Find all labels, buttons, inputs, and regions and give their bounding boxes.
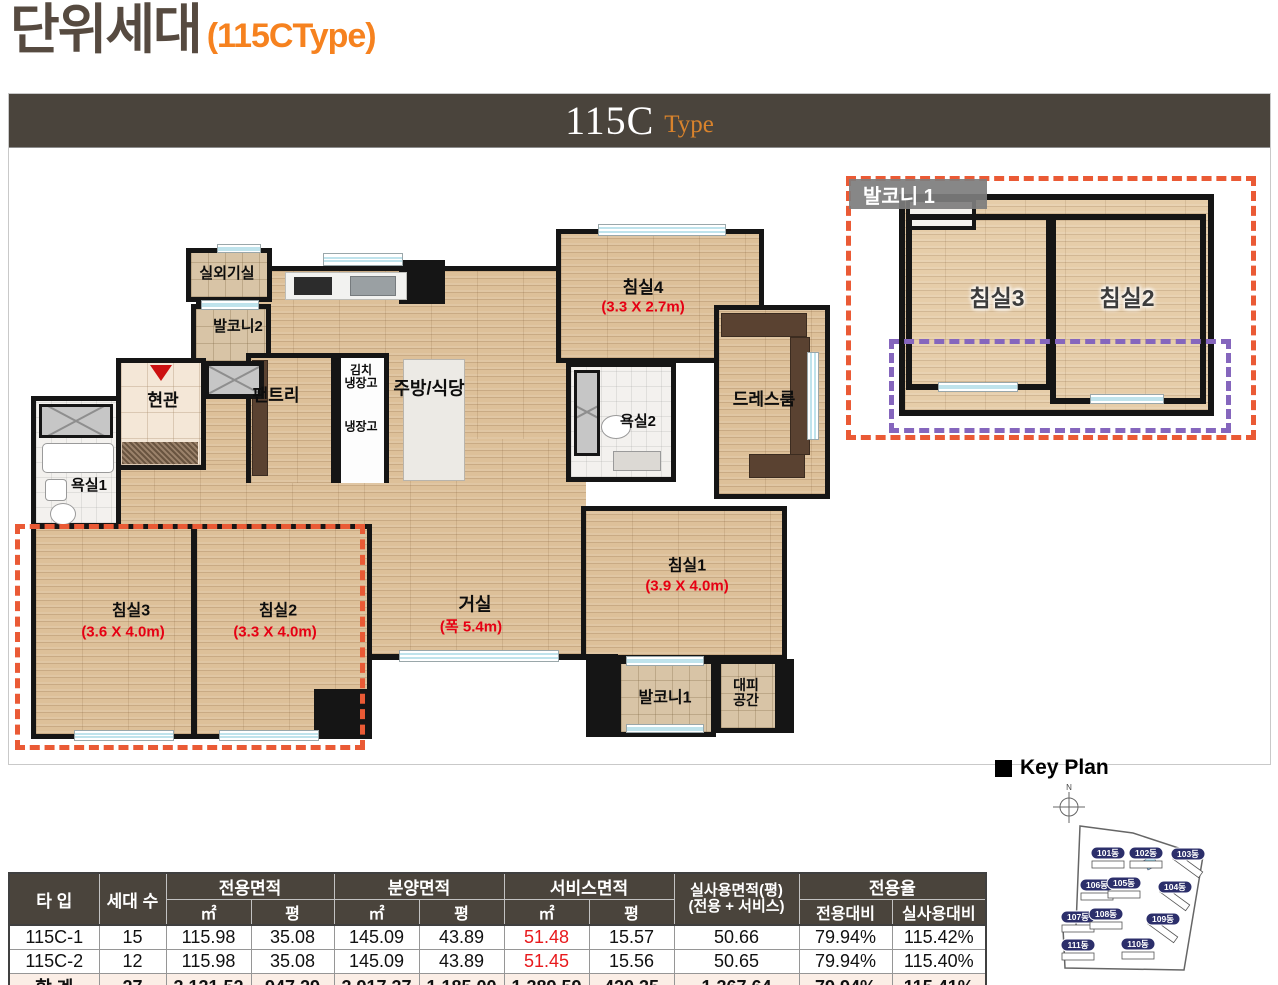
building-label: 108동 bbox=[1095, 909, 1117, 919]
building-label: 102동 bbox=[1135, 848, 1157, 858]
page-title-main: 단위세대 bbox=[10, 2, 201, 59]
cell: 1,185.00 bbox=[419, 974, 504, 985]
inset-outline bbox=[846, 176, 1256, 440]
window bbox=[598, 224, 726, 236]
compass-north-label: N bbox=[1066, 783, 1072, 792]
col-sub-m2: ㎡ bbox=[504, 900, 589, 926]
cell-service-m2: 51.48 bbox=[504, 925, 589, 950]
bath2-duct bbox=[574, 370, 600, 456]
label-pantry: 팬트리 bbox=[253, 387, 300, 405]
dim-bed2: (3.3 X 4.0m) bbox=[233, 624, 316, 641]
window bbox=[399, 650, 559, 662]
kitchen-counter bbox=[285, 272, 407, 300]
col-sub-py: 평 bbox=[419, 900, 504, 926]
wall-fill bbox=[586, 654, 618, 737]
col-units: 세대 수 bbox=[99, 873, 166, 925]
keyplan-bullet-icon bbox=[995, 760, 1012, 777]
building-label: 110동 bbox=[1127, 939, 1149, 949]
building-label: 107동 bbox=[1067, 912, 1089, 922]
wall-fill bbox=[780, 659, 794, 733]
type-banner: 115C Type bbox=[9, 94, 1270, 148]
col-group-supply: 분양면적 bbox=[334, 873, 504, 900]
vanity-icon bbox=[613, 451, 661, 471]
building-label: 101동 bbox=[1097, 848, 1119, 858]
inset-tag: 발코니 1 bbox=[849, 179, 987, 209]
wardrobe-top bbox=[721, 313, 807, 337]
compass-icon: N bbox=[1053, 783, 1085, 823]
cell: 145.09 bbox=[334, 950, 419, 974]
cell: 50.66 bbox=[674, 925, 799, 950]
cell: 35.08 bbox=[251, 950, 334, 974]
cell: 115.42% bbox=[892, 925, 986, 950]
keyplan-title: Key Plan bbox=[1020, 756, 1109, 780]
sink-icon bbox=[45, 479, 67, 501]
col-actual-area-line1: 실사용면적(평) bbox=[675, 883, 799, 900]
cell-service-m2: 51.45 bbox=[504, 950, 589, 974]
cell: 79.94% bbox=[799, 925, 892, 950]
inset-tag-label: 발코니 1 bbox=[863, 180, 935, 209]
cell: 420.35 bbox=[589, 974, 674, 985]
building-footprint bbox=[1092, 861, 1124, 868]
room-bath1 bbox=[31, 396, 121, 528]
col-sub-py: 평 bbox=[251, 900, 334, 926]
inset-label-bed3: 침실3 bbox=[969, 279, 1024, 313]
page: 단위세대 (115CType) 115C Type bbox=[0, 0, 1278, 985]
col-sub-exclusive-ratio: 전용대비 bbox=[799, 900, 892, 926]
building-footprint bbox=[1062, 925, 1094, 932]
building-label: 104동 bbox=[1164, 882, 1186, 892]
cell: 50.65 bbox=[674, 950, 799, 974]
cell: 79.94% bbox=[799, 974, 892, 985]
building-footprint bbox=[1108, 891, 1140, 898]
window bbox=[807, 352, 819, 440]
building-label: 106동 bbox=[1086, 880, 1108, 890]
cell: 145.09 bbox=[334, 925, 419, 950]
cell: 115.98 bbox=[166, 950, 251, 974]
cell: 합 계 bbox=[9, 974, 99, 985]
cell: 35.08 bbox=[251, 925, 334, 950]
entrance-arrow-icon bbox=[150, 365, 172, 381]
cell: 115.98 bbox=[166, 925, 251, 950]
window bbox=[626, 656, 704, 666]
col-sub-actual-ratio: 실사용대비 bbox=[892, 900, 986, 926]
floorplan-figure: 115C Type bbox=[8, 93, 1271, 765]
cell: 15.57 bbox=[589, 925, 674, 950]
wardrobe-bottom bbox=[749, 454, 805, 478]
cell: 1,367.64 bbox=[674, 974, 799, 985]
label-bed1: 침실1 bbox=[668, 557, 706, 574]
label-kitchen: 주방/식당 bbox=[393, 379, 464, 398]
label-bath1: 욕실1 bbox=[71, 478, 107, 494]
building-label: 111동 bbox=[1067, 940, 1088, 950]
building-footprint bbox=[1090, 922, 1122, 929]
cell: 43.89 bbox=[419, 950, 504, 974]
col-sub-py: 평 bbox=[589, 900, 674, 926]
page-title: 단위세대 (115CType) bbox=[10, 2, 376, 59]
label-kimchi-fridge: 김치 냉장고 bbox=[344, 364, 377, 390]
col-actual-area: 실사용면적(평) (전용 + 서비스) bbox=[674, 873, 799, 925]
building-label: 109동 bbox=[1152, 914, 1174, 924]
cell: 43.89 bbox=[419, 925, 504, 950]
dim-bed1: (3.9 X 4.0m) bbox=[645, 578, 728, 595]
cell: 3,131.52 bbox=[166, 974, 251, 985]
entrance-mat bbox=[122, 442, 198, 464]
type-banner-main: 115C bbox=[565, 97, 654, 144]
label-dressroom: 드레스룸 bbox=[733, 391, 796, 409]
cell: 1,389.59 bbox=[504, 974, 589, 985]
label-living: 거실 bbox=[458, 595, 491, 614]
label-bed4: 침실4 bbox=[623, 279, 664, 297]
type-banner-sub: Type bbox=[664, 103, 714, 139]
col-sub-m2: ㎡ bbox=[334, 900, 419, 926]
inset-label-bed2: 침실2 bbox=[1099, 279, 1154, 313]
page-title-sub: (115CType) bbox=[207, 17, 376, 59]
label-entrance: 현관 bbox=[147, 392, 178, 410]
cell: 15 bbox=[99, 925, 166, 950]
dim-bed3: (3.6 X 4.0m) bbox=[81, 624, 164, 641]
window bbox=[323, 253, 403, 266]
stove-icon bbox=[294, 277, 332, 295]
dim-bed4: (3.3 X 2.7m) bbox=[601, 299, 684, 316]
cell: 3,917.37 bbox=[334, 974, 419, 985]
building-footprint bbox=[1062, 953, 1094, 960]
label-balcony1: 발코니1 bbox=[638, 689, 691, 706]
keyplan-heading: Key Plan bbox=[995, 756, 1109, 780]
window bbox=[201, 300, 259, 310]
col-actual-area-line2: (전용 + 서비스) bbox=[675, 899, 799, 916]
sink-icon bbox=[350, 276, 396, 296]
cell: 115.40% bbox=[892, 950, 986, 974]
label-fridge: 냉장고 bbox=[344, 421, 377, 434]
label-refuge: 대피 공간 bbox=[733, 678, 759, 708]
cell: 12 bbox=[99, 950, 166, 974]
window bbox=[217, 244, 261, 253]
building-footprint bbox=[1122, 952, 1154, 959]
cell: 79.94% bbox=[799, 950, 892, 974]
area-table: 타 입 세대 수 전용면적 분양면적 서비스면적 실사용면적(평) (전용 + … bbox=[8, 872, 987, 985]
cell: 115C-2 bbox=[9, 950, 99, 974]
cell: 115.41% bbox=[892, 974, 986, 985]
building-label: 105동 bbox=[1113, 878, 1135, 888]
keyplan-map: N 101동102동103동106동105동104동107동108동109동11… bbox=[1028, 782, 1278, 985]
bath1-duct bbox=[39, 404, 113, 438]
table-row: 115C-2 12 115.98 35.08 145.09 43.89 51.4… bbox=[9, 950, 986, 974]
label-bath2: 욕실2 bbox=[620, 414, 656, 430]
building-label: 103동 bbox=[1177, 849, 1199, 859]
cell: 947.29 bbox=[251, 974, 334, 985]
toilet-icon bbox=[50, 503, 76, 525]
label-balcony2: 발코니2 bbox=[213, 319, 263, 335]
label-bed2: 침실2 bbox=[259, 602, 297, 619]
building-footprint bbox=[1130, 861, 1162, 868]
col-group-service: 서비스면적 bbox=[504, 873, 674, 900]
cell: 15.56 bbox=[589, 950, 674, 974]
table-row: 115C-1 15 115.98 35.08 145.09 43.89 51.4… bbox=[9, 925, 986, 950]
table-row-total: 합 계 27 3,131.52 947.29 3,917.37 1,185.00… bbox=[9, 974, 986, 985]
col-group-ratio: 전용율 bbox=[799, 873, 986, 900]
label-bed3: 침실3 bbox=[112, 602, 150, 619]
col-type: 타 입 bbox=[9, 873, 99, 925]
window bbox=[626, 724, 704, 733]
bathtub-icon bbox=[42, 443, 114, 473]
dim-living: (폭 5.4m) bbox=[440, 616, 502, 637]
col-sub-m2: ㎡ bbox=[166, 900, 251, 926]
cell: 27 bbox=[99, 974, 166, 985]
col-group-exclusive: 전용면적 bbox=[166, 873, 334, 900]
label-outdoor-unit: 실외기실 bbox=[199, 266, 254, 282]
cell: 115C-1 bbox=[9, 925, 99, 950]
